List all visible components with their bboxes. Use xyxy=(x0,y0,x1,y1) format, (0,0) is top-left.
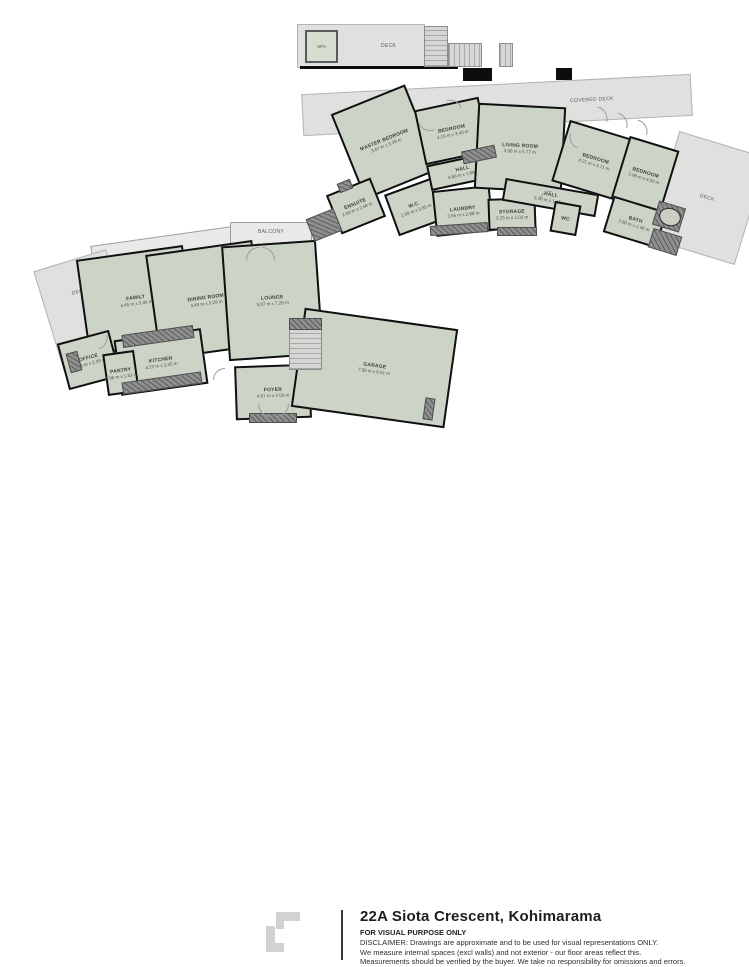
agency-logo-icon xyxy=(263,910,303,954)
deck-top-label: DECK xyxy=(381,43,396,49)
stairs-top-3 xyxy=(499,43,513,67)
balcony-top-label: BALCONY xyxy=(258,229,284,235)
disclaimer-line-1: DISCLAIMER: Drawings are approximate and… xyxy=(360,938,685,948)
spa: SPA xyxy=(305,30,338,63)
door-arc xyxy=(213,368,225,380)
stairs-lower xyxy=(289,326,322,370)
disclaimer-text: DISCLAIMER: Drawings are approximate and… xyxy=(360,938,685,967)
deck-right-label: DECK xyxy=(699,193,715,203)
room-dims: 4.45 m x 5.36 m xyxy=(120,298,153,307)
stairs-top-2 xyxy=(448,43,482,67)
room-wc-2: WC xyxy=(550,201,582,236)
disclaimer-line-2: We measure internal spaces (excl walls) … xyxy=(360,948,685,958)
stairs-top-1 xyxy=(424,26,448,67)
room-dims: 4.67 m x 2.05 m xyxy=(257,392,289,398)
disclaimer-line-3: Measurements should be verified by the b… xyxy=(360,957,685,967)
room-dims: 3.25 m x 2.03 m xyxy=(496,214,528,220)
wall-segment xyxy=(556,68,572,80)
spa-label: SPA xyxy=(317,44,326,49)
room-dims: 3.90 m x 5.77 m xyxy=(504,148,536,155)
covered-deck-label: COVERED DECK xyxy=(570,96,614,104)
wall-segment xyxy=(463,68,492,81)
visual-purpose-note: FOR VISUAL PURPOSE ONLY xyxy=(360,928,466,937)
stairs-landing xyxy=(289,318,322,330)
room-dims: 5.07 m x 7.26 m xyxy=(256,300,289,307)
entry-step xyxy=(249,413,297,423)
footer-divider xyxy=(341,910,343,960)
room-label: WC xyxy=(561,215,571,222)
property-address: 22A Siota Crescent, Kohimarama xyxy=(360,908,601,925)
step-shading xyxy=(497,227,537,236)
footer: 22A Siota Crescent, Kohimarama FOR VISUA… xyxy=(0,448,749,529)
